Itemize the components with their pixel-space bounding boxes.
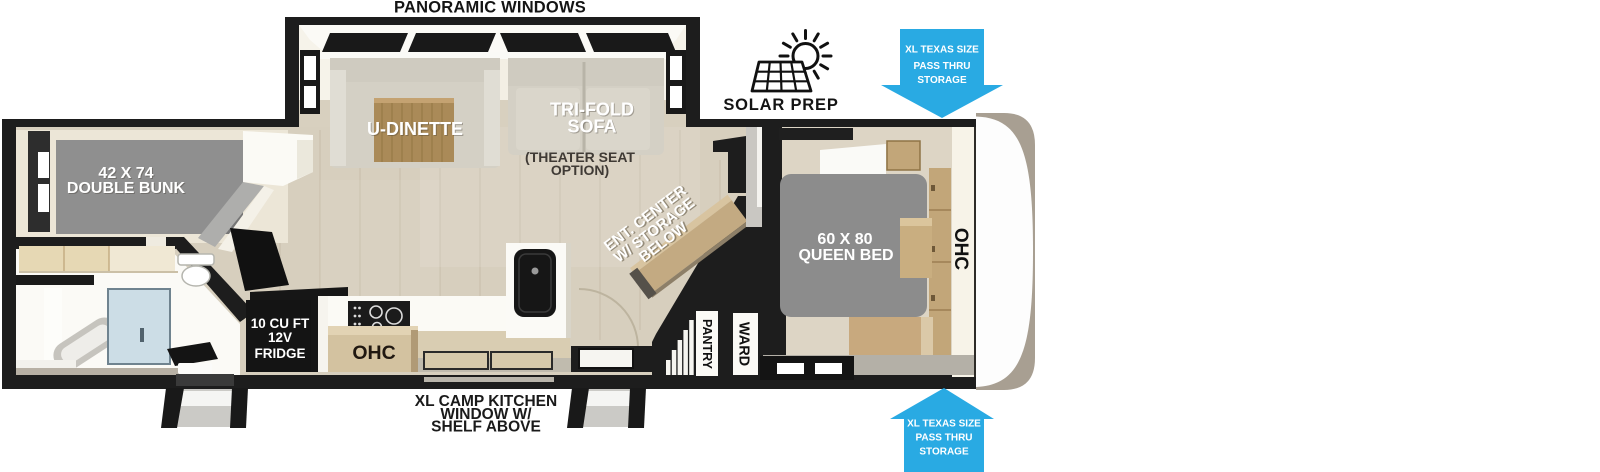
- svg-text:DOUBLE BUNK: DOUBLE BUNK: [67, 180, 186, 197]
- svg-text:PASS THRU: PASS THRU: [913, 61, 970, 72]
- svg-text:WARD: WARD: [736, 322, 752, 366]
- svg-text:PASS THRU: PASS THRU: [915, 433, 972, 444]
- svg-text:12V: 12V: [268, 330, 292, 345]
- svg-text:OPTION): OPTION): [551, 162, 609, 178]
- svg-text:OHC: OHC: [352, 342, 395, 364]
- svg-text:PANTRY: PANTRY: [700, 319, 714, 370]
- svg-text:SOFA: SOFA: [567, 117, 616, 137]
- svg-text:U-DINETTE: U-DINETTE: [367, 119, 463, 139]
- svg-text:SHELF ABOVE: SHELF ABOVE: [431, 419, 541, 436]
- svg-text:XL TEXAS SIZE: XL TEXAS SIZE: [907, 419, 981, 430]
- svg-text:FRIDGE: FRIDGE: [254, 346, 305, 361]
- svg-text:10 CU FT: 10 CU FT: [251, 316, 310, 331]
- svg-text:PANORAMIC WINDOWS: PANORAMIC WINDOWS: [394, 0, 586, 17]
- svg-text:QUEEN BED: QUEEN BED: [798, 247, 893, 264]
- svg-text:60 X 80: 60 X 80: [817, 231, 872, 248]
- svg-text:OHC: OHC: [950, 228, 971, 271]
- svg-text:STORAGE: STORAGE: [919, 447, 969, 458]
- svg-text:STORAGE: STORAGE: [917, 75, 967, 86]
- svg-text:SOLAR PREP: SOLAR PREP: [723, 96, 838, 114]
- svg-text:XL TEXAS SIZE: XL TEXAS SIZE: [905, 45, 979, 56]
